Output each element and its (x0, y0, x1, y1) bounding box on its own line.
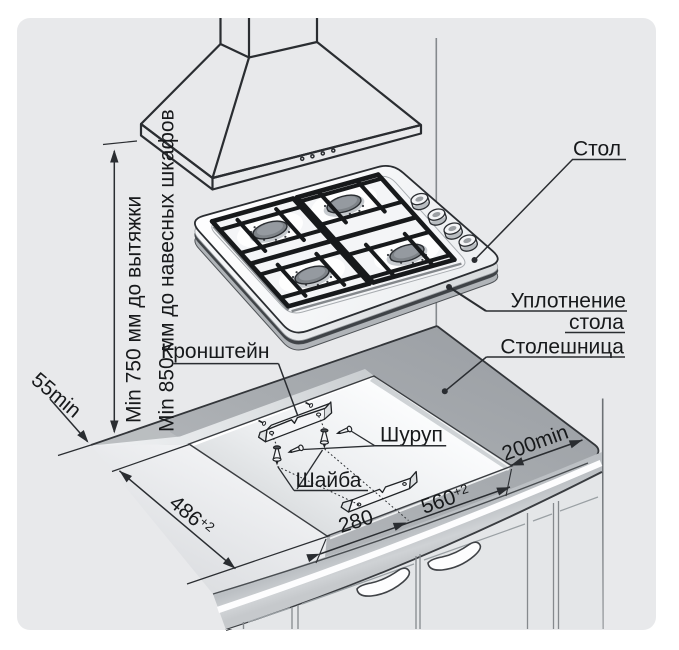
svg-text:Столешница: Столешница (500, 336, 624, 359)
svg-text:Min 750 мм до вытяжки: Min 750 мм до вытяжки (123, 196, 146, 423)
svg-text:стола: стола (569, 311, 624, 334)
svg-text:Уплотнение: Уплотнение (511, 290, 626, 313)
svg-text:Шайба: Шайба (296, 469, 362, 492)
svg-text:Стол: Стол (573, 138, 621, 161)
svg-text:Min 850 мм до навесных шкафов: Min 850 мм до навесных шкафов (156, 109, 179, 432)
svg-text:Шуруп: Шуруп (380, 424, 443, 447)
